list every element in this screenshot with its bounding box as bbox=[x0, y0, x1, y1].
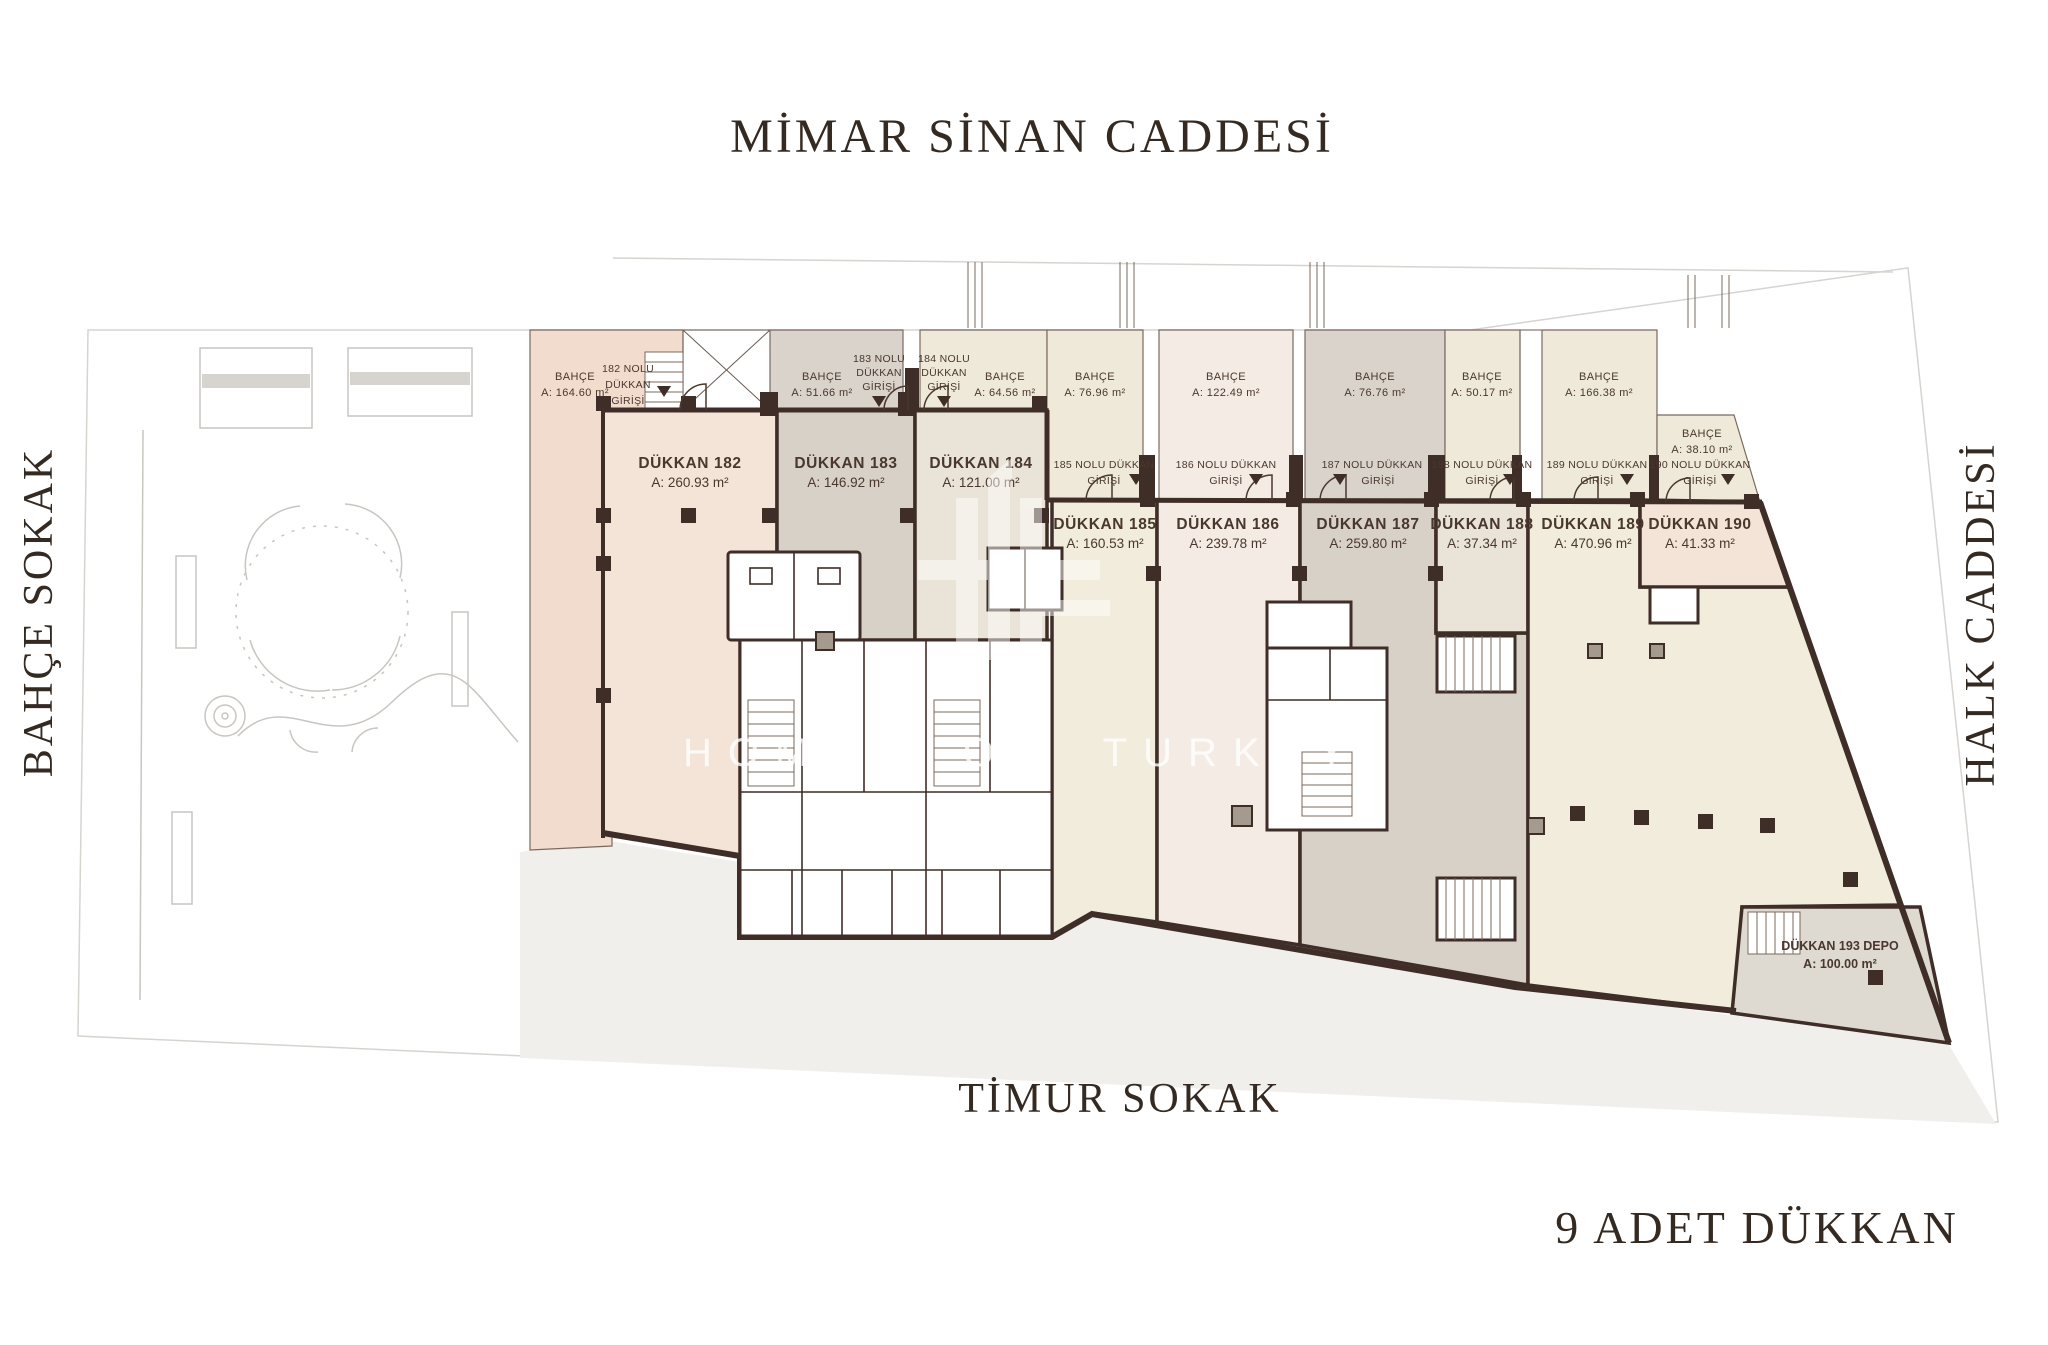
shop-count-caption: 9 ADET DÜKKAN bbox=[1555, 1202, 1959, 1253]
shop-185-name: DÜKKAN 185 bbox=[1053, 516, 1156, 533]
garden-188-name: BAHÇE bbox=[1462, 371, 1502, 383]
shop-182-area: A: 260.93 m² bbox=[651, 475, 729, 490]
garden-190-name: BAHÇE bbox=[1682, 428, 1722, 440]
shop-190-area: A: 41.33 m² bbox=[1665, 536, 1735, 551]
shop-189-name: DÜKKAN 189 bbox=[1541, 516, 1644, 533]
shop-183-name: DÜKKAN 183 bbox=[794, 455, 897, 472]
shop-186-area: A: 239.78 m² bbox=[1189, 536, 1267, 551]
street-right: HALK CADDESİ bbox=[1958, 441, 2004, 786]
watermark-text: HOMES OF TURKEY bbox=[683, 731, 1361, 775]
entrance-186-line2: GİRİŞİ bbox=[1209, 474, 1242, 487]
entrance-189-line1: 189 NOLU DÜKKAN bbox=[1547, 459, 1648, 471]
entrance-185-line2: GİRİŞİ bbox=[1087, 474, 1120, 487]
entrance-182-line1: 182 NOLU bbox=[602, 363, 654, 375]
bench-arc bbox=[352, 728, 378, 752]
fountain bbox=[205, 696, 245, 736]
entrance-183-line1: 183 NOLU bbox=[853, 353, 905, 365]
garden-182-area: A: 164.60 m² bbox=[541, 387, 609, 399]
garden-189-area: A: 166.38 m² bbox=[1565, 387, 1633, 399]
garden-182-name: BAHÇE bbox=[555, 371, 595, 383]
entrance-183-line2: DÜKKAN bbox=[856, 367, 902, 379]
path-circle bbox=[236, 526, 408, 698]
depo-193-area: A: 100.00 m² bbox=[1803, 957, 1877, 971]
stair-corridor bbox=[1520, 330, 1542, 500]
entrance-188-line2: GİRİŞİ bbox=[1465, 474, 1498, 487]
wc-190 bbox=[1650, 587, 1698, 623]
garden-186-name: BAHÇE bbox=[1206, 371, 1246, 383]
shop-186-name: DÜKKAN 186 bbox=[1176, 516, 1279, 533]
landscape-garden bbox=[140, 348, 518, 1000]
bench-arc bbox=[332, 636, 400, 690]
planter bbox=[176, 556, 196, 648]
entrance-190-line2: GİRİŞİ bbox=[1683, 474, 1716, 487]
street-top: MİMAR SİNAN CADDESİ bbox=[730, 110, 1334, 163]
floor-plan-page: BAHÇE A: 164.60 m² BAHÇE A: 51.66 m² BAH… bbox=[0, 0, 2048, 1345]
entrance-186-line1: 186 NOLU DÜKKAN bbox=[1176, 459, 1277, 471]
shop-188-name: DÜKKAN 188 bbox=[1430, 516, 1533, 533]
entrance-189-line2: GİRİŞİ bbox=[1580, 474, 1613, 487]
stair-core bbox=[1437, 878, 1515, 940]
garden-185-name: BAHÇE bbox=[1075, 371, 1115, 383]
entrance-188-line1: 188 NOLU DÜKKAN bbox=[1432, 459, 1533, 471]
shop-187-area: A: 259.80 m² bbox=[1329, 536, 1407, 551]
entrance-184-line3: GİRİŞİ bbox=[927, 380, 960, 393]
garden-183-area: A: 51.66 m² bbox=[791, 387, 852, 399]
floor-plan-drawing: BAHÇE A: 164.60 m² BAHÇE A: 51.66 m² BAH… bbox=[0, 0, 2048, 1345]
bench-arc bbox=[250, 640, 330, 691]
bench-arc bbox=[290, 730, 318, 752]
street-left: BAHÇE SOKAK bbox=[16, 447, 62, 778]
garden-188-area: A: 50.17 m² bbox=[1451, 387, 1512, 399]
lawn-wave bbox=[238, 674, 518, 742]
garden-185-area: A: 76.96 m² bbox=[1064, 387, 1125, 399]
stair-core bbox=[1437, 636, 1515, 692]
garden-190-area: A: 38.10 m² bbox=[1671, 444, 1732, 456]
bench-arc bbox=[245, 506, 300, 580]
shop-184-name: DÜKKAN 184 bbox=[929, 455, 1032, 472]
street-bottom: TİMUR SOKAK bbox=[958, 1076, 1282, 1122]
bench-arc bbox=[345, 504, 402, 578]
garden-184-area: A: 64.56 m² bbox=[974, 387, 1035, 399]
entrance-182-line3: GİRİŞİ bbox=[611, 394, 644, 407]
shop-182-name: DÜKKAN 182 bbox=[638, 455, 741, 472]
garden-183-name: BAHÇE bbox=[802, 371, 842, 383]
garden-184-name: BAHÇE bbox=[985, 371, 1025, 383]
shop-187-name: DÜKKAN 187 bbox=[1316, 516, 1419, 533]
garden-187-area: A: 76.76 m² bbox=[1344, 387, 1405, 399]
planter bbox=[172, 812, 192, 904]
entrance-185-line1: 185 NOLU DÜKKAN bbox=[1054, 459, 1155, 471]
entrance-182-line2: DÜKKAN bbox=[605, 379, 651, 391]
entrance-184-line1: 184 NOLU bbox=[918, 353, 970, 365]
shop-188-area: A: 37.34 m² bbox=[1447, 536, 1517, 551]
entrance-187-line1: 187 NOLU DÜKKAN bbox=[1322, 459, 1423, 471]
canopy-lines bbox=[613, 258, 1893, 328]
garden-189-name: BAHÇE bbox=[1579, 371, 1619, 383]
shop-190-name: DÜKKAN 190 bbox=[1648, 516, 1751, 533]
entrance-183-line3: GİRİŞİ bbox=[862, 380, 895, 393]
depo-193-name: DÜKKAN 193 DEPO bbox=[1781, 938, 1899, 953]
entrance-184-line2: DÜKKAN bbox=[921, 367, 967, 379]
garden-186-area: A: 122.49 m² bbox=[1192, 387, 1260, 399]
core-main bbox=[740, 640, 1052, 936]
shop-185-area: A: 160.53 m² bbox=[1066, 536, 1144, 551]
wc-pod bbox=[1267, 602, 1351, 648]
planter bbox=[452, 612, 468, 706]
shop-189-area: A: 470.96 m² bbox=[1554, 536, 1632, 551]
shop-183-area: A: 146.92 m² bbox=[807, 475, 885, 490]
entrance-190-line1: 190 NOLU DÜKKAN bbox=[1650, 459, 1751, 471]
entrance-187-line2: GİRİŞİ bbox=[1361, 474, 1394, 487]
garden-187-name: BAHÇE bbox=[1355, 371, 1395, 383]
